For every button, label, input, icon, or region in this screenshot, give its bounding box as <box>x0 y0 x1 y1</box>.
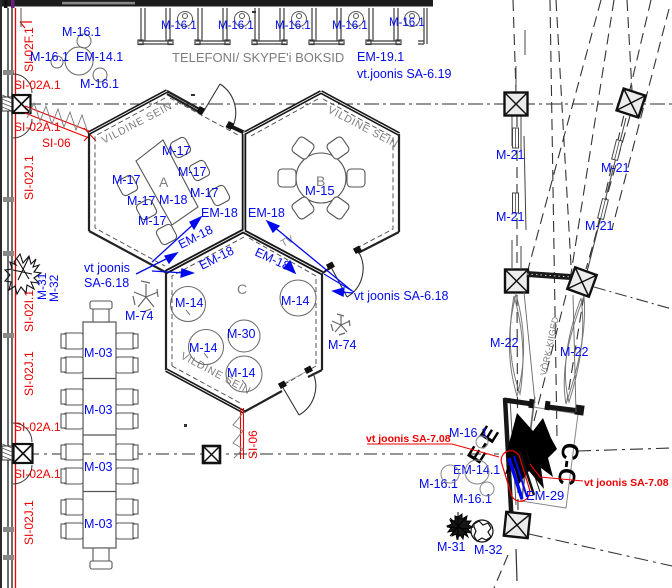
svg-text:EM-18: EM-18 <box>201 206 238 220</box>
svg-text:M-17: M-17 <box>162 144 191 158</box>
svg-text:EM-18: EM-18 <box>248 206 285 220</box>
svg-text:vt joonis SA-7.08: vt joonis SA-7.08 <box>366 433 451 445</box>
svg-text:M-22: M-22 <box>490 336 519 350</box>
svg-text:M-14: M-14 <box>281 294 310 308</box>
svg-text:M-03: M-03 <box>84 346 113 360</box>
svg-text:M-17: M-17 <box>138 214 167 228</box>
svg-text:M-16.1: M-16.1 <box>80 77 119 91</box>
svg-text:M-16.1: M-16.1 <box>449 426 488 440</box>
svg-text:M-17: M-17 <box>190 186 219 200</box>
svg-text:A: A <box>159 174 169 190</box>
svg-text:M-32: M-32 <box>474 543 503 557</box>
svg-text:M-16.1: M-16.1 <box>218 20 254 32</box>
svg-text:SI-02A.1: SI-02A.1 <box>14 120 61 134</box>
svg-text:M-14: M-14 <box>227 366 256 380</box>
svg-text:SI-06: SI-06 <box>42 136 71 150</box>
svg-text:M-14: M-14 <box>189 341 218 355</box>
svg-text:SI-02J.1: SI-02J.1 <box>22 500 36 545</box>
svg-text:M-74: M-74 <box>125 309 154 323</box>
svg-text:EM-14.1: EM-14.1 <box>453 463 500 477</box>
svg-text:M-03: M-03 <box>84 517 113 531</box>
svg-text:M-03: M-03 <box>84 403 113 417</box>
svg-text:M-30: M-30 <box>227 327 256 341</box>
svg-text:SI-02A.1: SI-02A.1 <box>14 467 61 481</box>
svg-text:M-15: M-15 <box>305 183 335 198</box>
svg-text:M-31: M-31 <box>437 540 466 554</box>
svg-text:M-16.1: M-16.1 <box>332 20 368 32</box>
svg-text:M-17: M-17 <box>178 165 207 179</box>
svg-text:SI-02J.1: SI-02J.1 <box>22 351 36 396</box>
svg-text:vt joonis SA-7.08: vt joonis SA-7.08 <box>584 477 669 489</box>
svg-text:M-17: M-17 <box>127 194 156 208</box>
svg-text:M-21: M-21 <box>601 161 630 175</box>
svg-text:SI-02I.1: SI-02I.1 <box>22 290 36 332</box>
svg-text:M-16.1: M-16.1 <box>30 50 69 64</box>
svg-text:M-14: M-14 <box>175 296 204 310</box>
svg-text:M-03: M-03 <box>84 460 113 474</box>
svg-text:SA-6.18: SA-6.18 <box>84 276 129 290</box>
svg-text:EM-14.1: EM-14.1 <box>76 50 123 64</box>
svg-text:SI-06: SI-06 <box>246 430 260 459</box>
svg-text:M-16.1: M-16.1 <box>62 25 101 39</box>
svg-text:M-21: M-21 <box>585 219 614 233</box>
svg-text:SI-02A.1: SI-02A.1 <box>14 420 61 434</box>
svg-text:M-21: M-21 <box>496 148 525 162</box>
svg-text:M-16.1: M-16.1 <box>419 477 458 491</box>
svg-text:M-16.1: M-16.1 <box>161 20 197 32</box>
svg-text:M-32: M-32 <box>47 274 61 302</box>
svg-text:EM-29: EM-29 <box>526 488 564 503</box>
svg-text:M-17: M-17 <box>112 173 141 187</box>
svg-text:M-21: M-21 <box>496 210 525 224</box>
svg-text:EM-19.1: EM-19.1 <box>357 50 404 64</box>
svg-text:SI-02J.1: SI-02J.1 <box>22 155 36 200</box>
svg-text:TELEFONI/ SKYPE'i BOKSID: TELEFONI/ SKYPE'i BOKSID <box>172 50 344 65</box>
svg-text:SI-02A.1: SI-02A.1 <box>14 78 61 92</box>
svg-text:M-18: M-18 <box>159 193 188 207</box>
svg-text:C: C <box>237 281 247 297</box>
svg-text:M-16.1: M-16.1 <box>275 20 311 32</box>
svg-text:vt joonis SA-6.18: vt joonis SA-6.18 <box>354 289 449 303</box>
svg-text:M-16.1: M-16.1 <box>453 492 492 506</box>
svg-text:M-16.1: M-16.1 <box>389 17 425 29</box>
svg-text:vt joonis: vt joonis <box>84 261 130 275</box>
svg-text:M-74: M-74 <box>328 338 357 352</box>
svg-text:vt.joonis SA-6.19: vt.joonis SA-6.19 <box>357 67 452 81</box>
